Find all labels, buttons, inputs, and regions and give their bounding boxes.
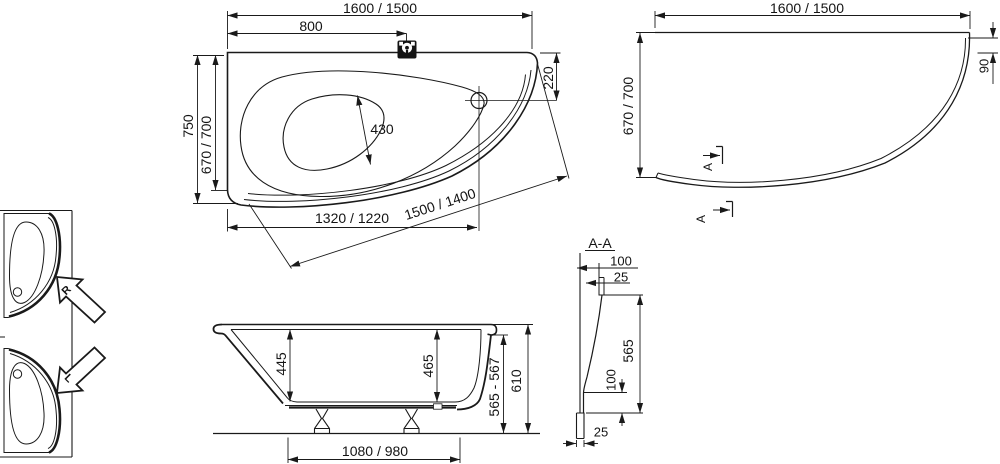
section-label-a-bottom: A	[695, 215, 707, 223]
dim-plan-overall-width: 1600 / 1500	[343, 1, 417, 15]
support-legs	[315, 409, 420, 434]
dim-contour-overall-width: 1600 / 1500	[770, 1, 844, 15]
dim-contour-depth: 670 / 700	[621, 77, 635, 135]
dim-section-top-lip: 25	[614, 271, 628, 284]
dim-plan-bottom-edge: 1320 / 1220	[315, 211, 389, 225]
technical-drawing-sheet: 1600 / 1500 800 750 670 / 700 430 220 13…	[0, 0, 1000, 464]
dim-section-foot-width: 25	[594, 426, 608, 439]
dim-plan-depth-overall: 750	[181, 114, 195, 137]
dim-section-top-width: 100	[610, 255, 632, 268]
orientation-panel	[0, 211, 105, 458]
dim-section-height: 565	[621, 339, 635, 362]
tub-left-icon	[4, 349, 60, 453]
dim-front-base-width: 1080 / 980	[342, 444, 408, 458]
section-title: A-A	[588, 236, 611, 250]
dim-plan-depth-inner: 670 / 700	[199, 116, 213, 174]
dim-contour-corner-drop: 90	[978, 59, 991, 73]
plan-view	[193, 11, 569, 269]
dim-section-base-height: 100	[605, 369, 618, 391]
section-label-a-top: A	[702, 163, 714, 171]
faucet-icon	[398, 41, 417, 59]
dim-front-depth-left: 445	[274, 352, 288, 375]
dim-plan-faucet-offset: 800	[299, 19, 322, 33]
dim-front-depth-right: 465	[421, 354, 435, 377]
dim-front-rim-height: 565 - 567	[487, 357, 501, 416]
arrow-left-version-icon	[57, 348, 105, 394]
dim-plan-corner-edge: 220	[541, 66, 555, 89]
dim-plan-basin-width: 430	[370, 122, 393, 136]
tub-right-icon	[4, 214, 60, 318]
dim-front-total-height: 610	[509, 369, 523, 392]
contour-view	[636, 11, 998, 217]
